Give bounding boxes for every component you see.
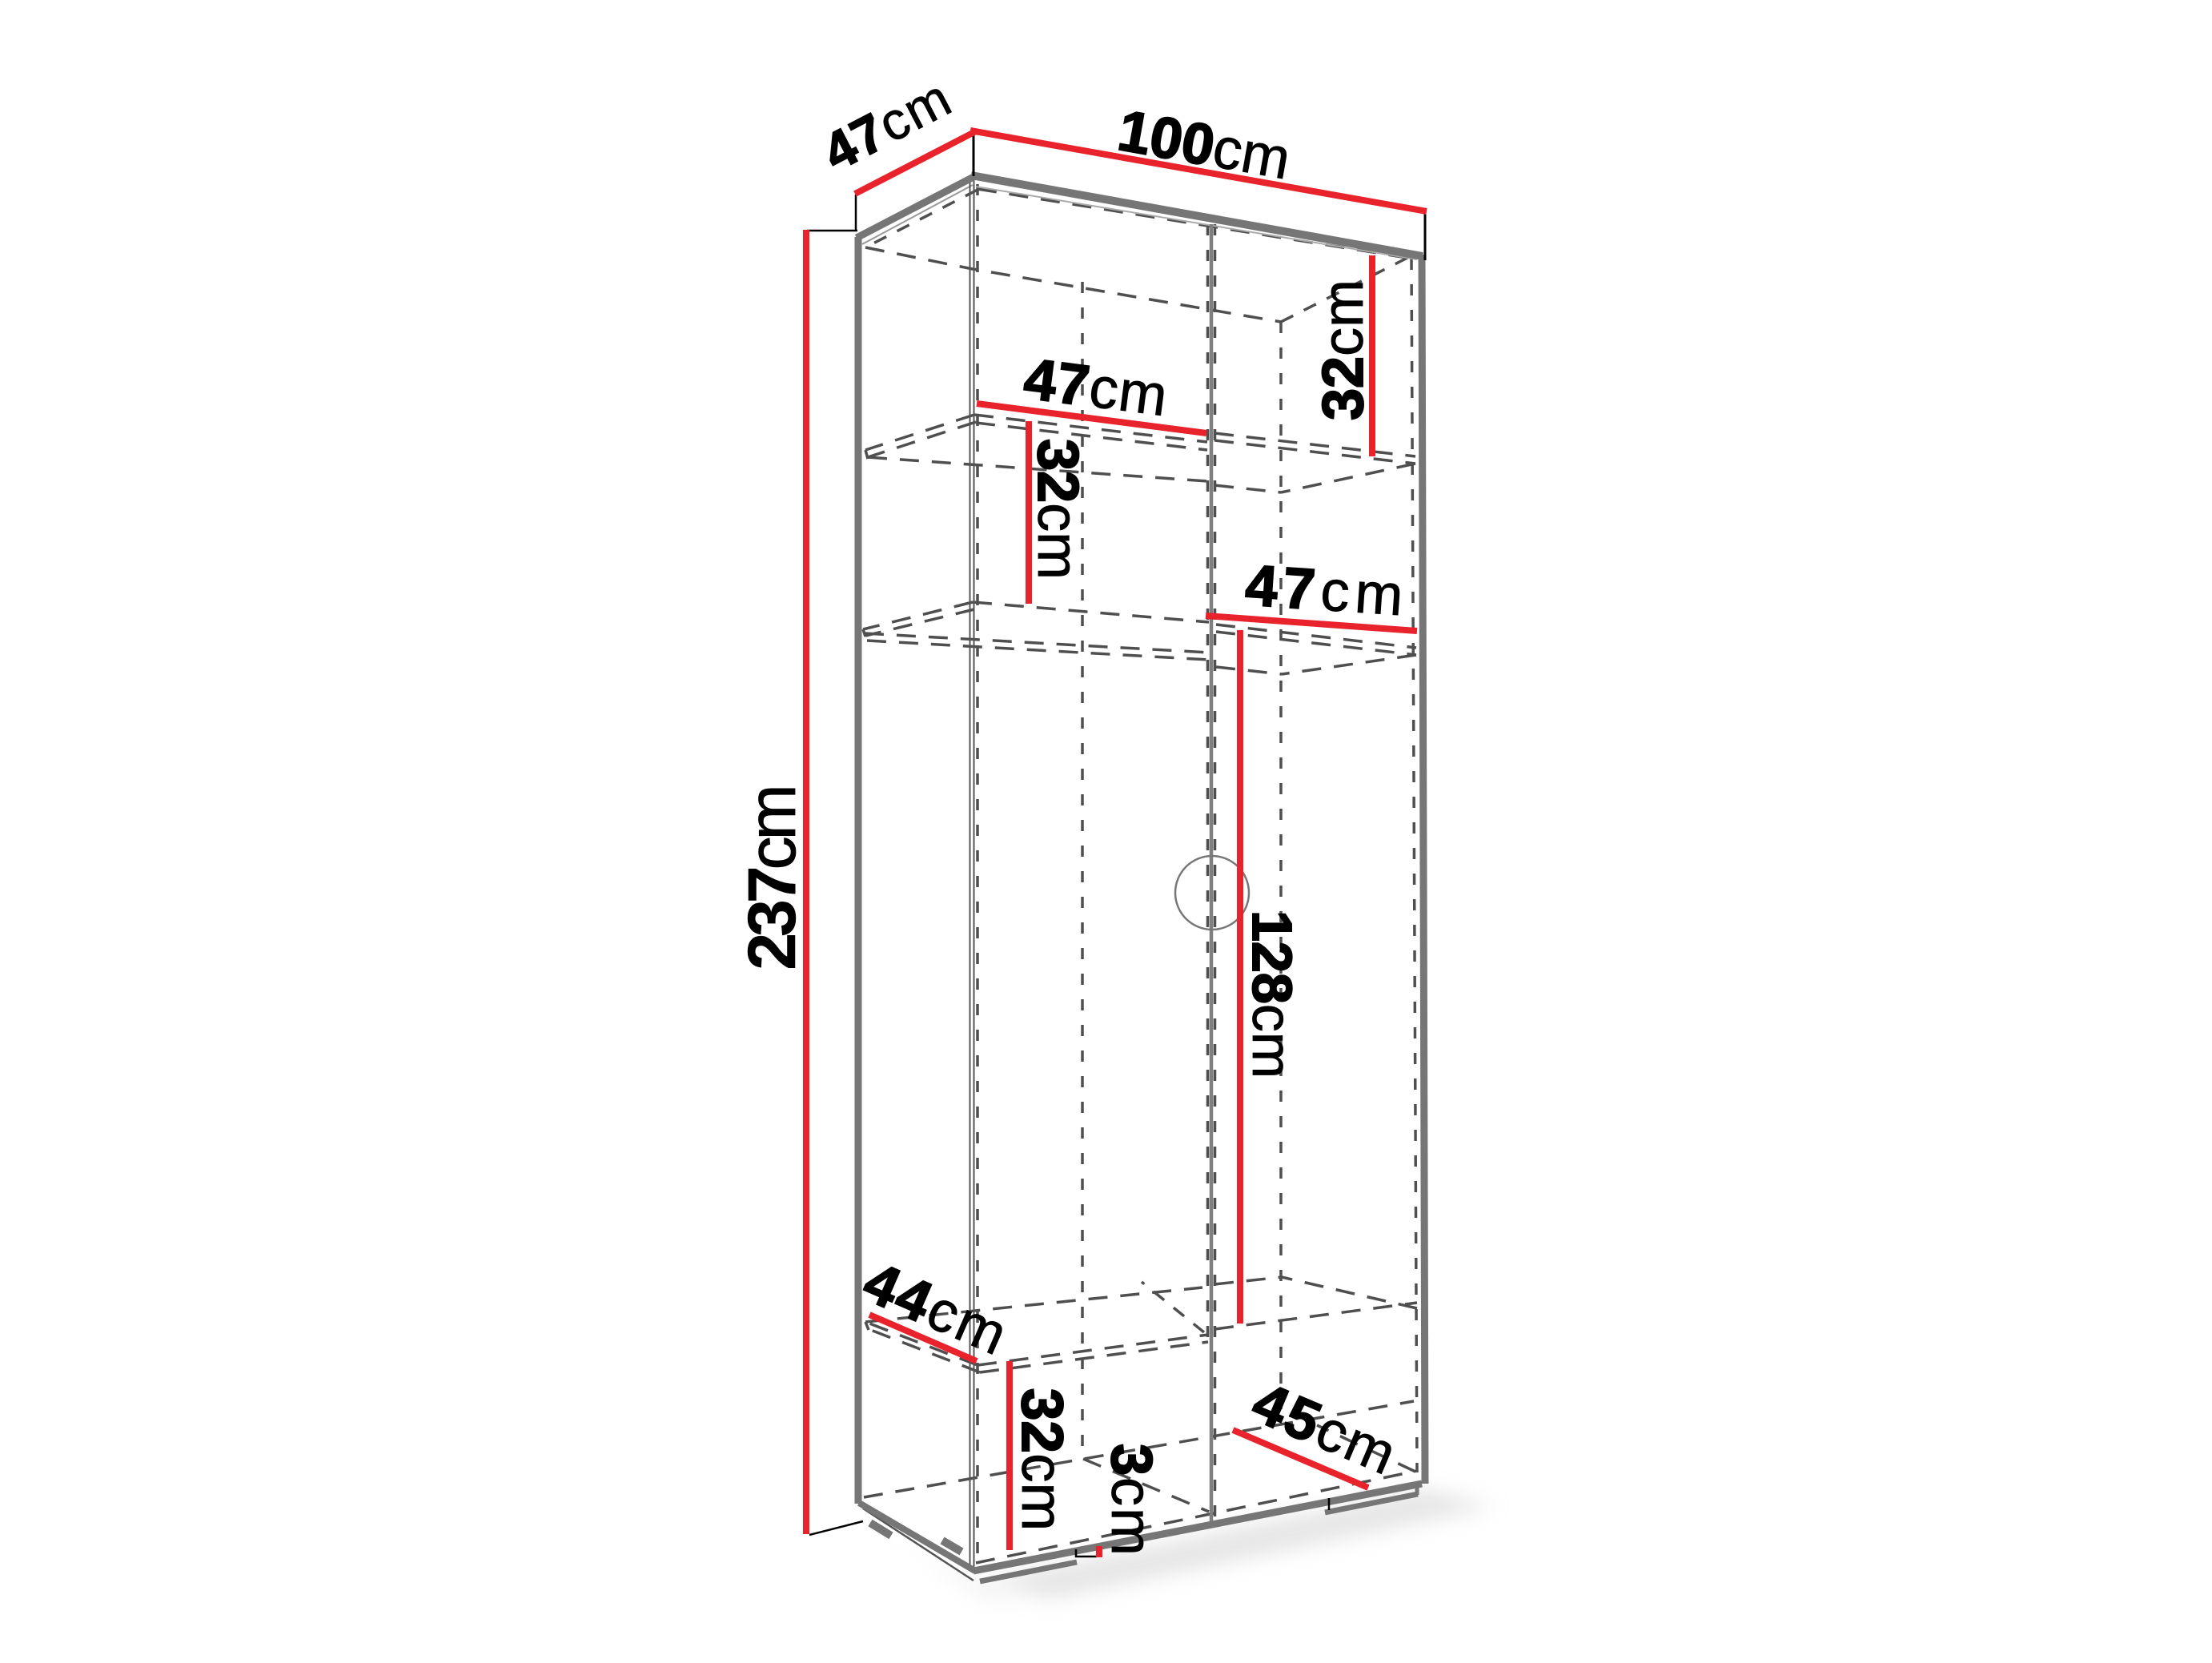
svg-text:47cm: 47cm [1243,553,1411,629]
svg-text:32cm: 32cm [1311,279,1375,420]
svg-text:237cm: 237cm [734,788,809,970]
svg-text:32cm: 32cm [1010,1388,1074,1532]
svg-text:32cm: 32cm [1026,439,1090,580]
svg-text:128cm: 128cm [1241,910,1303,1079]
svg-text:3cm: 3cm [1099,1444,1163,1557]
